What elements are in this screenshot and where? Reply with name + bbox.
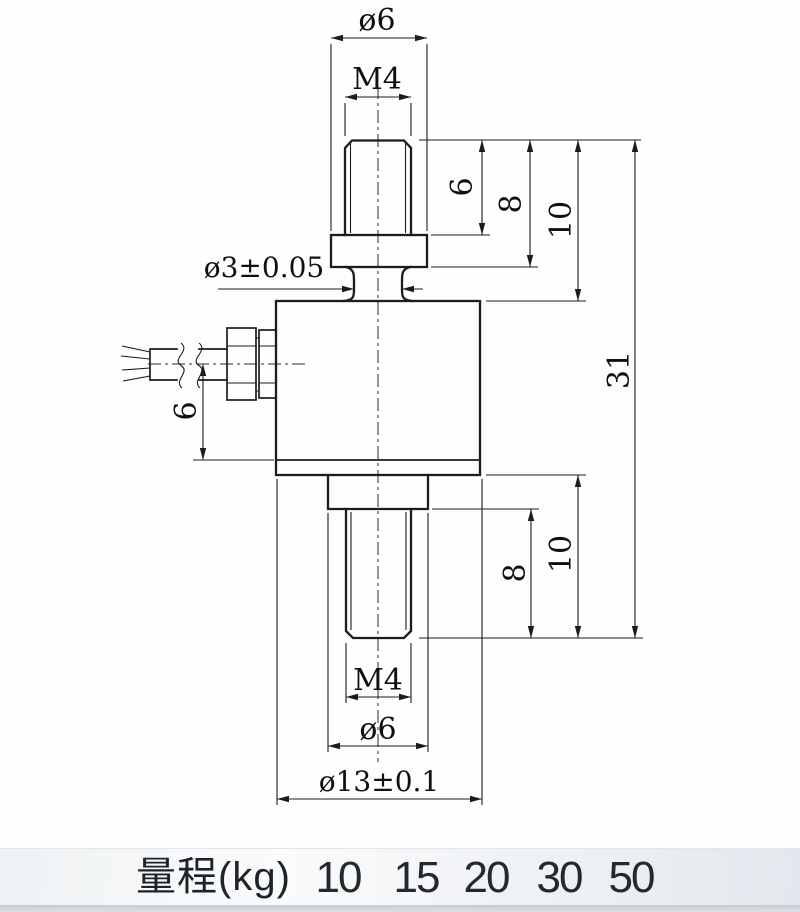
- dim-label-bottom-thread-len: 8: [498, 563, 533, 582]
- arrowhead: [632, 140, 638, 152]
- dim-label-bottom-thread: M4: [353, 663, 403, 698]
- arrowhead: [575, 626, 581, 638]
- arrowhead: [527, 255, 533, 267]
- arrowhead: [402, 286, 414, 292]
- capacity-range-strip: 量程(kg) 10 15 20 30 50: [0, 848, 800, 906]
- arrowhead: [470, 796, 482, 802]
- dim-bottom-thread-length: 8: [498, 509, 534, 638]
- range-value-30: 30: [537, 849, 582, 906]
- dim-label-top-section: 10: [544, 201, 579, 239]
- cable: [121, 343, 227, 388]
- dim-label-cable-offset: 6: [169, 401, 204, 420]
- arrowhead: [575, 140, 581, 152]
- technical-drawing-area: ø6 M4 6: [0, 0, 800, 848]
- dim-top-thread-length: 6: [445, 140, 485, 235]
- dim-overall-height: 31: [602, 140, 638, 638]
- dim-body-diameter: ø13±0.1: [277, 479, 482, 805]
- screenshot-root: ø6 M4 6: [0, 0, 800, 912]
- dim-neck-diameter: ø3±0.05: [204, 251, 423, 292]
- arrowhead: [479, 223, 485, 235]
- arrowhead: [328, 743, 340, 749]
- arrowhead: [277, 796, 289, 802]
- bottom-edge-bar: [0, 905, 800, 912]
- dim-label-neck: ø3±0.05: [204, 251, 324, 284]
- arrowhead: [528, 626, 534, 638]
- dim-top-stud-length: 8: [494, 140, 533, 267]
- arrowhead: [416, 743, 428, 749]
- range-label: 量程(kg): [136, 849, 291, 906]
- dim-label-body-dia: ø13±0.1: [319, 765, 439, 798]
- range-value-20: 20: [464, 849, 509, 906]
- arrowhead: [479, 140, 485, 152]
- dim-label-overall: 31: [602, 351, 637, 389]
- range-value-50: 50: [609, 849, 654, 906]
- neck-left-fillet: [344, 267, 354, 301]
- load-cell-drawing: ø6 M4 6: [0, 0, 800, 848]
- arrowhead: [200, 364, 206, 376]
- dim-label-bottom-dia: ø6: [359, 712, 396, 747]
- cable-wires: [121, 346, 150, 381]
- cable-break-curve-1: [178, 343, 184, 388]
- dim-label-bottom-section: 10: [544, 535, 579, 573]
- top-stud: [331, 141, 427, 302]
- centerlines: [148, 86, 378, 762]
- dim-label-top-thread: M4: [352, 62, 402, 97]
- arrowhead: [331, 35, 343, 41]
- dim-label-thread-len: 6: [445, 177, 480, 196]
- arrowhead: [527, 140, 533, 152]
- arrowhead: [342, 286, 354, 292]
- range-value-10: 10: [316, 849, 361, 906]
- arrowhead: [415, 35, 427, 41]
- arrowhead: [575, 289, 581, 301]
- range-value-15: 15: [394, 849, 439, 906]
- dim-top-section: 10: [544, 140, 581, 301]
- dim-bottom-thread: M4: [346, 643, 411, 703]
- dim-label-stud-len: 8: [494, 194, 529, 213]
- dim-label-top-dia: ø6: [358, 3, 395, 38]
- top-collar: [331, 235, 427, 267]
- arrowhead: [575, 475, 581, 487]
- arrowhead: [528, 509, 534, 521]
- neck-right-fillet: [402, 267, 412, 301]
- dim-bottom-section: 10: [544, 475, 581, 638]
- arrowhead: [200, 448, 206, 460]
- arrowhead: [632, 626, 638, 638]
